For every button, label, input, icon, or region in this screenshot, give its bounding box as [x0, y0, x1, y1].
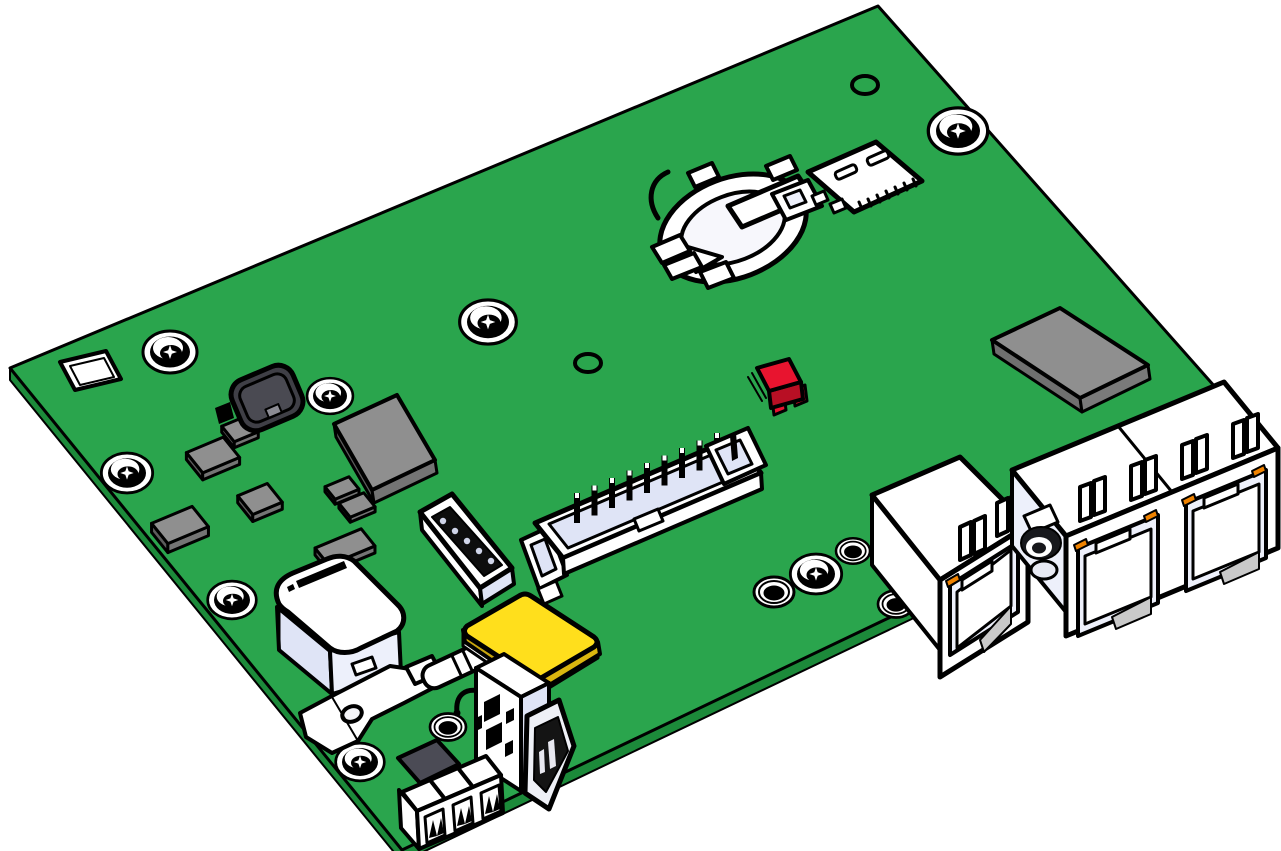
mounting-screw [143, 331, 197, 373]
pcb-board [10, 6, 1262, 851]
via [852, 76, 878, 94]
mounting-screw [208, 581, 257, 619]
terminal-block [398, 740, 503, 849]
pcb-scene: Isometric CAD line-art rendering of a gr… [0, 0, 1281, 851]
mounting-screw [101, 453, 152, 493]
standoff [754, 577, 794, 607]
mounting-screw [928, 108, 987, 154]
mounting-screw [460, 300, 517, 344]
board-top [10, 6, 1262, 850]
pcb-cad-render: Isometric CAD line-art rendering of a gr… [0, 0, 1281, 851]
mounting-screw [307, 378, 353, 414]
standoff [836, 538, 870, 564]
standoff [430, 714, 466, 741]
via [575, 354, 601, 372]
mounting-screw [790, 554, 841, 594]
